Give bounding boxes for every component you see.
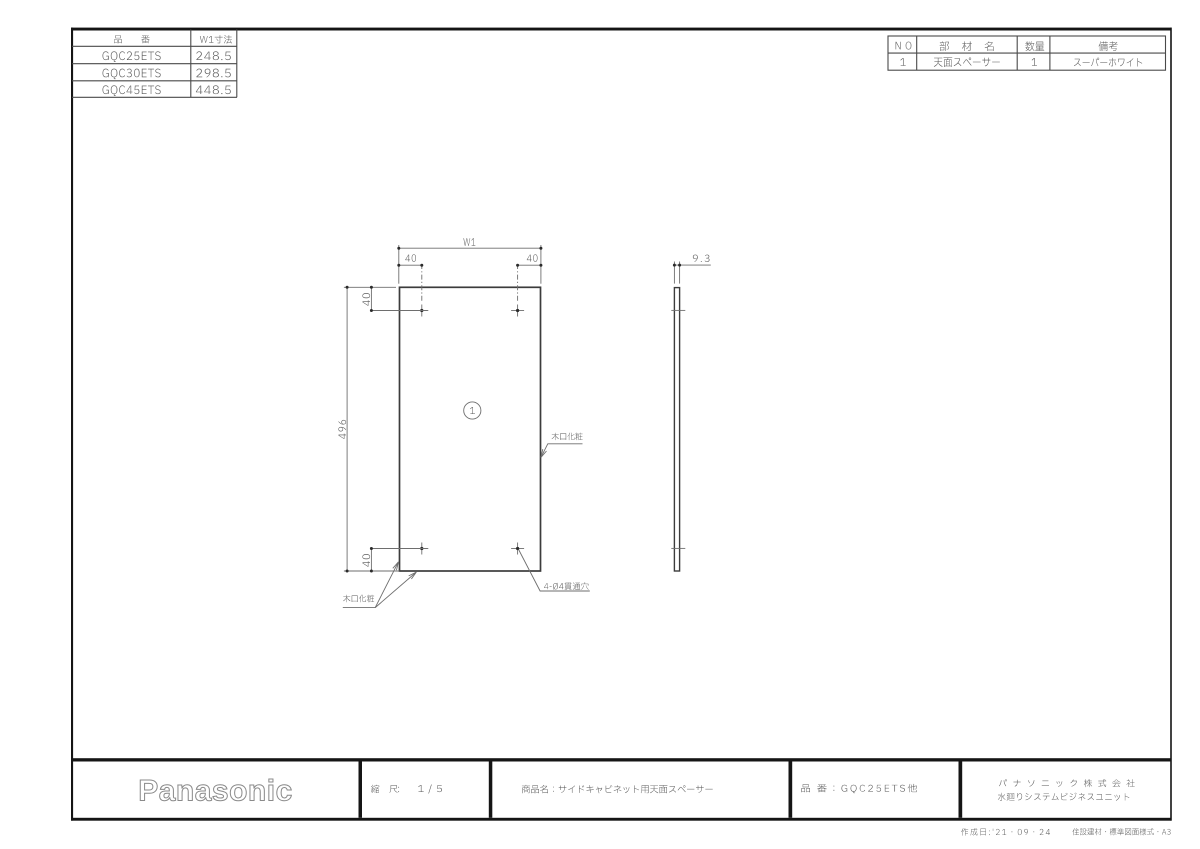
- svg-text:Panasonic: Panasonic: [138, 774, 293, 807]
